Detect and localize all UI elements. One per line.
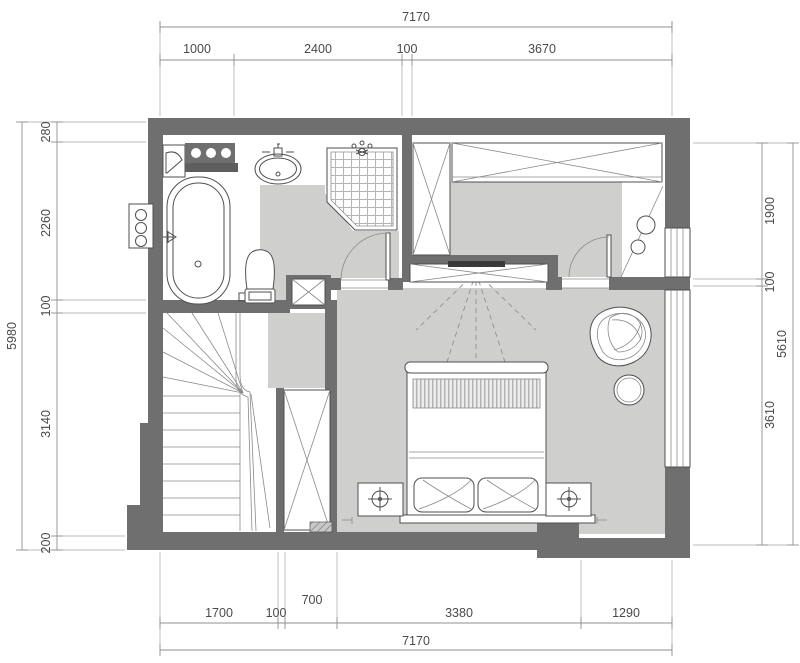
shelf-unit (185, 143, 238, 172)
dim-top-seg-2: 100 (397, 42, 418, 56)
dim-bottom-seg-3: 3380 (445, 606, 473, 620)
dimensions-bottom: 1700 100 700 3380 1290 7170 (160, 552, 672, 656)
window-lower (665, 290, 690, 467)
landing-floor (268, 313, 325, 388)
dim-top-seg-3: 3670 (528, 42, 556, 56)
toilet (239, 250, 275, 303)
threshold-hatch (310, 522, 332, 532)
window-upper (665, 228, 690, 277)
dimensions-top: 7170 1000 2400 100 3670 (160, 10, 672, 116)
dim-top-total: 7170 (402, 10, 430, 24)
dim-bottom-seg-2: 700 (302, 593, 323, 607)
dim-top-seg-0: 1000 (183, 42, 211, 56)
dim-right-total: 5610 (775, 330, 789, 358)
wall-right-top (665, 118, 690, 228)
dimensions-right: 1900 100 3610 5610 (693, 143, 799, 545)
wall-closetbox-left (276, 388, 284, 534)
nightstand-right (546, 483, 591, 516)
dim-right-seg-0: 1900 (763, 197, 777, 225)
dim-left-seg-1: 2260 (39, 209, 53, 237)
tv (448, 261, 505, 267)
radiator (129, 204, 153, 248)
floor-plan-canvas: 7170 1000 2400 100 3670 1700 100 700 338… (0, 0, 800, 663)
clothes-rail (621, 186, 663, 277)
staircase (163, 313, 270, 531)
bed-throw (413, 379, 540, 408)
stair-winders (163, 313, 243, 393)
wall-bottom-left (127, 532, 540, 550)
dim-left-seg-3: 3140 (39, 410, 53, 438)
tv-niche (410, 261, 548, 282)
dim-bottom-seg-0: 1700 (205, 606, 233, 620)
wardrobe-tall (413, 143, 450, 255)
wall-right-bottom (665, 467, 690, 558)
window-right (665, 228, 690, 467)
door-leaf (607, 235, 611, 277)
bed-pillow-right (478, 478, 538, 512)
wall-hall-bedroom (325, 300, 337, 390)
bed-pillow-left (414, 478, 474, 512)
side-table (614, 375, 644, 405)
dim-top-seg-1: 2400 (304, 42, 332, 56)
shaft-box (292, 279, 325, 305)
dim-bottom-total: 7170 (402, 634, 430, 648)
dim-left-seg-0: 280 (39, 122, 53, 143)
wall-closetbox-right (330, 388, 337, 534)
dim-left-seg-2: 100 (39, 296, 53, 317)
stair-treads (163, 393, 240, 531)
washbasin (255, 144, 301, 184)
floor-plan-svg: 7170 1000 2400 100 3670 1700 100 700 338… (0, 0, 800, 663)
armchair (590, 307, 651, 366)
door-leaf (386, 233, 390, 280)
dimensions-left: 280 2260 100 3140 200 5980 (5, 122, 146, 554)
stair-handrail (236, 313, 270, 531)
wall-closet-south-right (609, 277, 665, 290)
wall-right-pier (665, 277, 690, 290)
bathtub (163, 177, 230, 304)
nightstand-left (358, 483, 403, 516)
dim-right-seg-2: 3610 (763, 401, 777, 429)
dim-right-seg-1: 100 (763, 272, 777, 293)
dim-bottom-seg-1: 100 (266, 606, 287, 620)
dim-left-total: 5980 (5, 322, 19, 350)
dim-left-seg-4: 200 (39, 533, 53, 554)
wardrobe-wide (452, 143, 662, 182)
stair-closet (284, 390, 332, 532)
dim-bottom-seg-4: 1290 (612, 606, 640, 620)
bed-headboard (405, 362, 548, 373)
laundry-box (163, 145, 185, 177)
wall-top (148, 118, 690, 135)
